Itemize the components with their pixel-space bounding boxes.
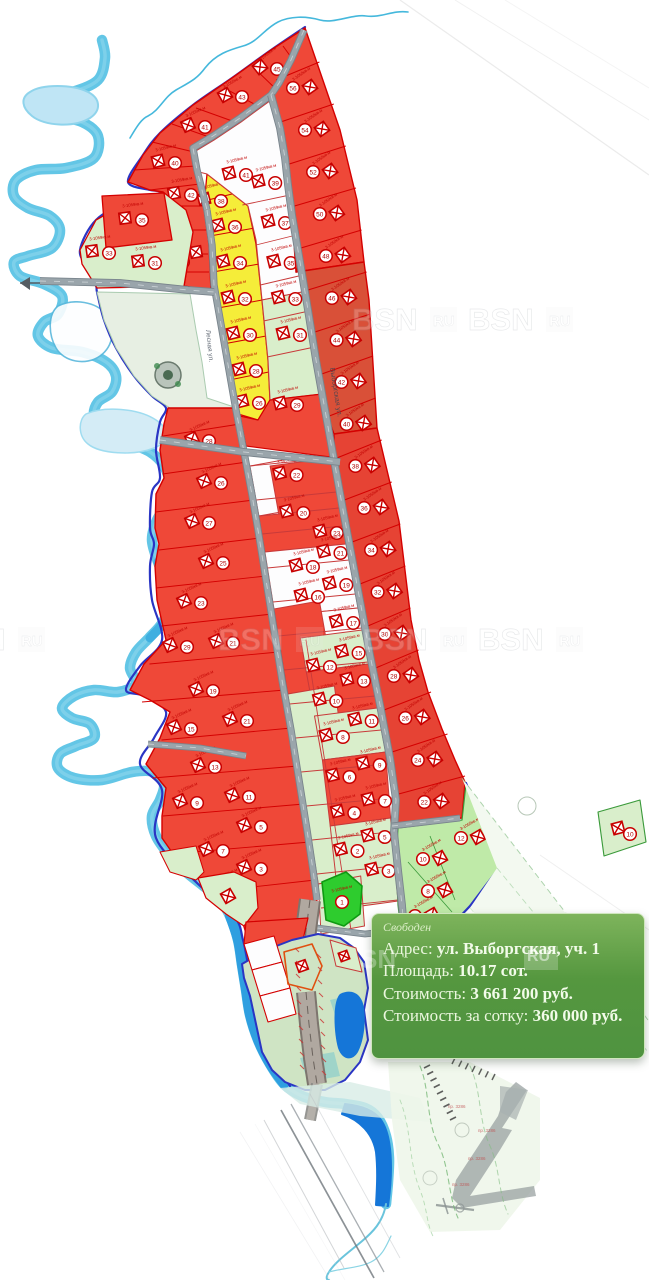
svg-text:41: 41 xyxy=(242,172,250,179)
svg-text:25: 25 xyxy=(219,560,227,567)
svg-text:11: 11 xyxy=(246,794,253,801)
svg-text:пр. 3286: пр. 3286 xyxy=(468,1156,486,1161)
svg-text:26: 26 xyxy=(217,480,225,487)
svg-text:10: 10 xyxy=(333,698,341,705)
svg-text:22: 22 xyxy=(293,472,301,479)
svg-text:41: 41 xyxy=(201,124,209,131)
svg-text:1: 1 xyxy=(340,899,344,906)
svg-text:5: 5 xyxy=(383,834,387,841)
svg-text:33: 33 xyxy=(105,250,113,257)
svg-text:15: 15 xyxy=(187,726,195,733)
svg-text:18: 18 xyxy=(309,564,317,571)
svg-text:35: 35 xyxy=(138,217,146,224)
svg-text:21: 21 xyxy=(337,550,345,557)
svg-text:29: 29 xyxy=(183,644,191,651)
svg-text:BSN: BSN xyxy=(468,302,533,337)
svg-text:BSN: BSN xyxy=(352,302,417,337)
svg-text:42: 42 xyxy=(187,192,195,199)
svg-text:54: 54 xyxy=(301,127,309,134)
svg-text:34: 34 xyxy=(236,260,244,267)
svg-text:50: 50 xyxy=(316,211,324,218)
svg-text:36: 36 xyxy=(231,224,239,231)
svg-text:3: 3 xyxy=(387,868,391,875)
svg-text:39: 39 xyxy=(272,180,280,187)
svg-text:3: 3 xyxy=(259,866,263,873)
svg-text:20: 20 xyxy=(300,510,308,517)
svg-text:13: 13 xyxy=(211,764,219,771)
svg-text:пр. 3286: пр. 3286 xyxy=(448,1104,466,1109)
svg-text:пр. 3286: пр. 3286 xyxy=(478,1128,496,1133)
svg-text:43: 43 xyxy=(238,94,246,101)
svg-text:33: 33 xyxy=(292,296,300,303)
svg-text:45: 45 xyxy=(273,66,281,73)
svg-text:29: 29 xyxy=(293,402,301,409)
svg-text:40: 40 xyxy=(343,421,351,428)
svg-text:17: 17 xyxy=(350,620,358,627)
svg-text:12: 12 xyxy=(457,835,465,842)
svg-text:пр. 3286: пр. 3286 xyxy=(452,1182,470,1187)
svg-text:RU: RU xyxy=(549,313,571,330)
svg-text:9: 9 xyxy=(195,800,199,807)
svg-text:22: 22 xyxy=(421,799,429,806)
svg-text:48: 48 xyxy=(322,253,330,260)
svg-text:26: 26 xyxy=(255,400,263,407)
svg-text:28: 28 xyxy=(252,368,260,375)
svg-text:36: 36 xyxy=(360,505,368,512)
svg-text:37: 37 xyxy=(281,220,289,227)
svg-text:16: 16 xyxy=(314,594,322,601)
svg-text:2: 2 xyxy=(356,848,360,855)
svg-text:6: 6 xyxy=(348,774,352,781)
svg-text:7: 7 xyxy=(221,848,225,855)
svg-text:24: 24 xyxy=(414,757,422,764)
svg-text:RU: RU xyxy=(21,633,43,650)
svg-text:19: 19 xyxy=(343,582,351,589)
svg-text:8: 8 xyxy=(341,734,345,741)
svg-text:5: 5 xyxy=(259,824,263,831)
svg-text:38: 38 xyxy=(352,463,360,470)
svg-text:28: 28 xyxy=(390,673,398,680)
svg-text:19: 19 xyxy=(209,688,217,695)
svg-text:30: 30 xyxy=(246,332,254,339)
svg-text:27: 27 xyxy=(205,520,213,527)
svg-text:BSN: BSN xyxy=(218,622,283,657)
svg-text:9: 9 xyxy=(378,762,382,769)
svg-text:32: 32 xyxy=(241,296,249,303)
svg-text:RU: RU xyxy=(559,633,581,650)
svg-text:23: 23 xyxy=(197,600,205,607)
svg-text:38: 38 xyxy=(217,198,225,205)
svg-text:10: 10 xyxy=(419,856,427,863)
svg-text:BSN: BSN xyxy=(362,622,427,657)
svg-text:RU: RU xyxy=(299,633,321,650)
svg-text:21: 21 xyxy=(243,718,251,725)
svg-text:26: 26 xyxy=(402,715,410,722)
svg-text:BSN: BSN xyxy=(0,622,5,657)
svg-text:11: 11 xyxy=(368,718,375,725)
svg-text:40: 40 xyxy=(171,160,179,167)
svg-text:13: 13 xyxy=(360,678,368,685)
svg-text:52: 52 xyxy=(309,169,317,176)
svg-text:56: 56 xyxy=(289,85,297,92)
svg-text:35: 35 xyxy=(287,260,295,267)
svg-text:44: 44 xyxy=(333,337,341,344)
svg-text:7: 7 xyxy=(383,798,387,805)
svg-text:31: 31 xyxy=(296,332,304,339)
svg-text:RU: RU xyxy=(433,313,455,330)
svg-text:BSN: BSN xyxy=(478,622,543,657)
svg-text:10: 10 xyxy=(626,831,634,838)
svg-text:42: 42 xyxy=(338,379,346,386)
svg-text:RU: RU xyxy=(443,633,465,650)
svg-text:4: 4 xyxy=(352,810,356,817)
svg-text:46: 46 xyxy=(328,295,336,302)
svg-text:34: 34 xyxy=(367,547,375,554)
svg-text:12: 12 xyxy=(326,664,334,671)
svg-text:32: 32 xyxy=(374,589,382,596)
svg-text:31: 31 xyxy=(151,260,159,267)
